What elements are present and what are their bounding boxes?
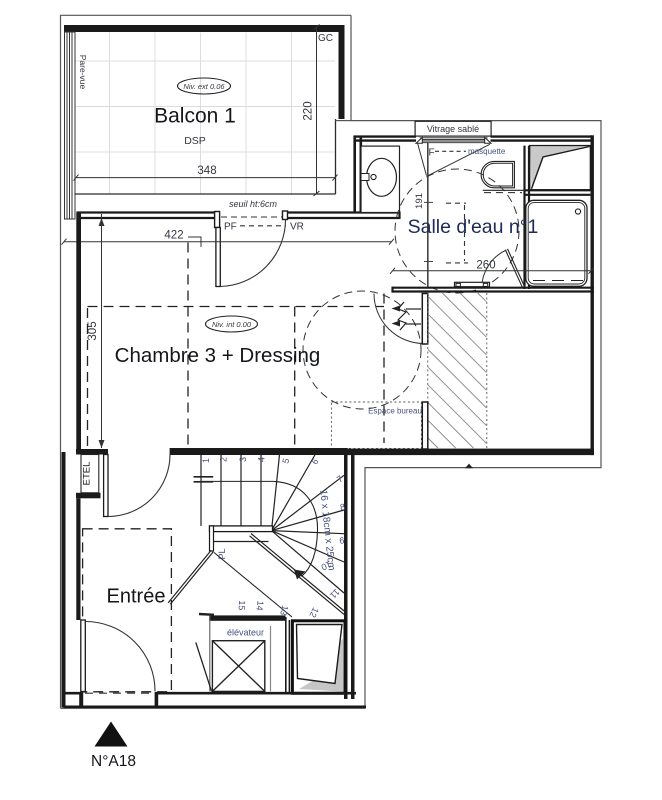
svg-text:2: 2 xyxy=(219,457,229,462)
svg-text:14: 14 xyxy=(254,600,265,611)
svg-text:220: 220 xyxy=(303,101,315,120)
svg-text:PL: PL xyxy=(217,548,227,559)
svg-text:Pare-vue: Pare-vue xyxy=(78,55,88,90)
svg-text:15: 15 xyxy=(237,600,248,611)
svg-text:Entrée: Entrée xyxy=(107,586,166,608)
svg-text:191: 191 xyxy=(414,193,425,209)
svg-text:PF: PF xyxy=(224,222,237,233)
svg-text:1: 1 xyxy=(201,458,211,463)
svg-text:Niv. int 0.00: Niv. int 0.00 xyxy=(212,320,252,329)
svg-text:GC: GC xyxy=(318,33,333,44)
svg-text:Niv. ext 0.06: Niv. ext 0.06 xyxy=(183,82,225,91)
svg-text:masquette: masquette xyxy=(468,147,506,156)
svg-text:Vitrage sablé: Vitrage sablé xyxy=(427,124,479,134)
svg-text:VR: VR xyxy=(290,222,304,233)
svg-text:348: 348 xyxy=(197,165,216,177)
svg-text:Chambre 3 + Dressing: Chambre 3 + Dressing xyxy=(115,344,321,367)
svg-text:422: 422 xyxy=(164,230,183,242)
svg-text:3: 3 xyxy=(238,457,248,462)
svg-text:305: 305 xyxy=(87,321,99,340)
svg-text:Balcon 1: Balcon 1 xyxy=(154,105,236,128)
svg-text:9: 9 xyxy=(339,535,345,545)
svg-text:N°A18: N°A18 xyxy=(91,753,136,770)
svg-text:ETEL: ETEL xyxy=(82,462,93,486)
svg-text:260: 260 xyxy=(476,260,495,272)
svg-text:Espace bureau: Espace bureau xyxy=(368,407,422,416)
svg-text:F: F xyxy=(429,148,435,159)
svg-text:4: 4 xyxy=(257,457,267,462)
svg-text:Salle d'eau n°1: Salle d'eau n°1 xyxy=(408,216,539,238)
svg-text:DSP: DSP xyxy=(184,135,206,147)
svg-text:élévateur: élévateur xyxy=(227,628,264,638)
svg-text:seuil ht:6cm: seuil ht:6cm xyxy=(229,199,278,209)
